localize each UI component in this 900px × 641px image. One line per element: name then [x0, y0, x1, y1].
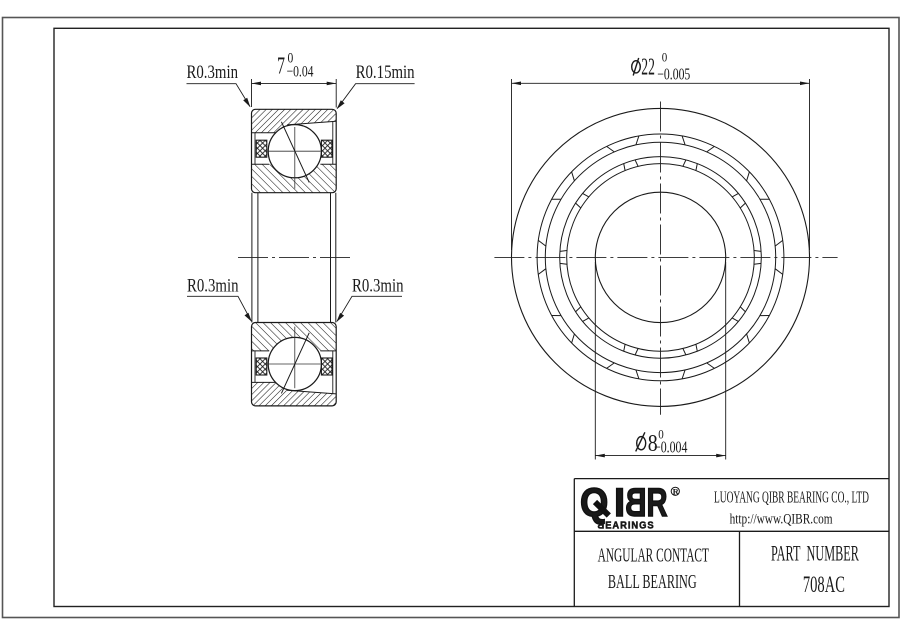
- svg-text:R0.15min: R0.15min: [356, 62, 415, 83]
- svg-text:ANGULAR CONTACT: ANGULAR CONTACT: [598, 545, 709, 567]
- svg-text:708AC: 708AC: [803, 572, 845, 598]
- svg-text:7: 7: [277, 54, 285, 80]
- svg-text:R0.3min: R0.3min: [187, 276, 239, 297]
- svg-text:LUOYANG QIBR BEARING CO., LTD: LUOYANG QIBR BEARING CO., LTD: [714, 487, 869, 506]
- svg-text:R0.3min: R0.3min: [187, 62, 239, 83]
- svg-text:R0.3min: R0.3min: [352, 276, 404, 297]
- svg-text:−0.005: −0.005: [657, 64, 690, 83]
- svg-text:R: R: [647, 481, 668, 526]
- svg-text:http://www.QIBR.com: http://www.QIBR.com: [730, 512, 834, 528]
- svg-text:−0.004: −0.004: [654, 437, 687, 456]
- svg-text:EARINGS: EARINGS: [605, 520, 654, 531]
- svg-text:0: 0: [662, 50, 668, 65]
- svg-text:−0.04: −0.04: [287, 63, 314, 80]
- svg-text:BALL BEARING: BALL BEARING: [608, 571, 697, 593]
- svg-text:B: B: [597, 520, 604, 531]
- svg-text:PART NUMBER: PART NUMBER: [771, 541, 859, 566]
- svg-text:R: R: [673, 486, 680, 496]
- svg-text:B: B: [625, 481, 646, 525]
- svg-text:I: I: [614, 481, 625, 525]
- svg-text:22: 22: [641, 54, 655, 80]
